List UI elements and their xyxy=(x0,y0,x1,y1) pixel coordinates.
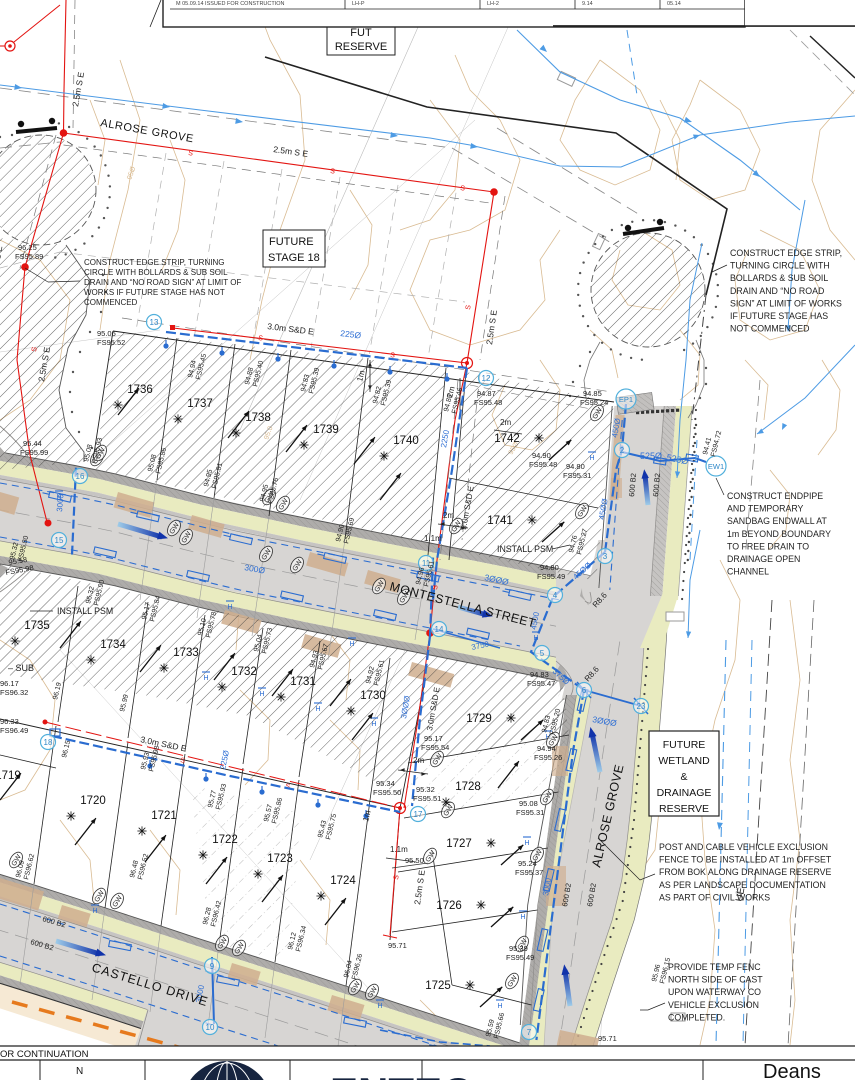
svg-text:FS95.49: FS95.49 xyxy=(537,572,565,581)
svg-text:POST AND CABLE VEHICLE EXCLUSI: POST AND CABLE VEHICLE EXCLUSION xyxy=(659,842,828,852)
svg-text:94.87: 94.87 xyxy=(477,389,496,398)
svg-text:FROM BOK ALONG DRAINAGE RESERV: FROM BOK ALONG DRAINAGE RESERVE xyxy=(659,867,832,877)
svg-text:95.50: 95.50 xyxy=(405,856,424,865)
svg-text:1723: 1723 xyxy=(267,853,293,865)
svg-text:BOLLARDS & SUB SOIL: BOLLARDS & SUB SOIL xyxy=(730,273,828,283)
svg-text:NORTH SIDE OF CAST: NORTH SIDE OF CAST xyxy=(668,975,763,985)
svg-text:1738: 1738 xyxy=(245,412,271,424)
svg-text:95.39: 95.39 xyxy=(509,944,528,953)
svg-text:2m: 2m xyxy=(443,511,454,520)
svg-text:DRAINAGE OPEN: DRAINAGE OPEN xyxy=(727,554,800,564)
svg-text:1733: 1733 xyxy=(173,647,199,659)
svg-text:96.17: 96.17 xyxy=(0,679,19,688)
svg-text:94.90: 94.90 xyxy=(532,451,551,460)
svg-text:1724: 1724 xyxy=(330,875,356,887)
svg-text:INSTALL PSM: INSTALL PSM xyxy=(497,544,553,554)
svg-text:95.34: 95.34 xyxy=(376,779,395,788)
svg-text:&: & xyxy=(680,771,687,783)
svg-text:CONSTRUCT EDGE STRIP, TURNING: CONSTRUCT EDGE STRIP, TURNING xyxy=(84,258,224,267)
svg-text:1741: 1741 xyxy=(487,515,513,527)
svg-text:H: H xyxy=(534,635,539,642)
svg-text:1736: 1736 xyxy=(127,384,153,396)
svg-text:1729: 1729 xyxy=(466,713,492,725)
svg-text:LH-P: LH-P xyxy=(352,1,365,7)
svg-text:95.06: 95.06 xyxy=(97,329,116,338)
svg-text:1728: 1728 xyxy=(455,781,481,793)
svg-text:H: H xyxy=(498,1003,503,1010)
svg-text:FS95.51: FS95.51 xyxy=(413,794,441,803)
svg-text:COMPLETED.: COMPLETED. xyxy=(668,1012,725,1022)
svg-text:CHANNEL: CHANNEL xyxy=(727,567,769,577)
svg-text:H: H xyxy=(260,691,265,698)
svg-text:AND TEMPORARY: AND TEMPORARY xyxy=(727,504,804,514)
svg-text:1720: 1720 xyxy=(80,795,106,807)
svg-text:05.14: 05.14 xyxy=(667,1,681,7)
svg-text:TURNING CIRCLE WITH: TURNING CIRCLE WITH xyxy=(730,261,830,271)
svg-text:FS95.52: FS95.52 xyxy=(97,338,125,347)
svg-text:FENCE TO BE INSTALLED AT 1m OF: FENCE TO BE INSTALLED AT 1m OFFSET xyxy=(659,855,832,865)
svg-text:DRAINAGE: DRAINAGE xyxy=(657,787,712,799)
svg-text:LH-2: LH-2 xyxy=(487,1,499,7)
svg-text:H: H xyxy=(372,721,377,728)
svg-text:AS PART OF CIVIL WORKS: AS PART OF CIVIL WORKS xyxy=(659,892,770,902)
svg-text:OR CONTINUATION: OR CONTINUATION xyxy=(0,1049,89,1060)
svg-text:3: 3 xyxy=(603,552,608,561)
svg-text:94.80: 94.80 xyxy=(566,462,585,471)
svg-text:UPON WATERWAY CO: UPON WATERWAY CO xyxy=(668,987,761,997)
svg-text:H: H xyxy=(525,840,530,847)
svg-text:FS95.54: FS95.54 xyxy=(421,743,449,752)
svg-text:FUTURE: FUTURE xyxy=(269,236,314,248)
svg-text:WORKS IF FUTURE STAGE HAS NOT: WORKS IF FUTURE STAGE HAS NOT xyxy=(84,288,225,297)
svg-text:1.1m: 1.1m xyxy=(390,845,408,854)
svg-text:12: 12 xyxy=(482,374,491,383)
svg-text:95.71: 95.71 xyxy=(598,1034,617,1043)
svg-text:9.14: 9.14 xyxy=(582,1,593,7)
svg-text:95.17: 95.17 xyxy=(424,734,443,743)
svg-text:5: 5 xyxy=(540,649,545,658)
svg-text:FUTURE: FUTURE xyxy=(663,739,706,751)
svg-text:Deans: Deans xyxy=(763,1061,821,1080)
svg-text:3000: 3000 xyxy=(55,493,66,512)
svg-text:6: 6 xyxy=(582,686,587,695)
svg-text:1732: 1732 xyxy=(231,666,257,678)
svg-text:ENTEC: ENTEC xyxy=(330,1069,472,1080)
svg-text:18: 18 xyxy=(44,738,53,747)
svg-text:23: 23 xyxy=(637,702,646,711)
svg-text:1721: 1721 xyxy=(151,810,177,822)
svg-text:CONSTRUCT EDGE STRIP,: CONSTRUCT EDGE STRIP, xyxy=(730,248,842,258)
svg-text:10: 10 xyxy=(206,1023,215,1032)
svg-text:H: H xyxy=(590,455,595,462)
svg-text:VEHICLE EXCLUSION: VEHICLE EXCLUSION xyxy=(668,1000,759,1010)
svg-text:4: 4 xyxy=(553,591,558,600)
svg-text:1731: 1731 xyxy=(290,676,316,688)
svg-text:1725: 1725 xyxy=(425,980,451,992)
svg-text:FS95.31: FS95.31 xyxy=(516,808,544,817)
svg-text:H: H xyxy=(204,675,209,682)
svg-text:1734: 1734 xyxy=(100,639,126,651)
svg-text:WETLAND: WETLAND xyxy=(658,755,710,767)
svg-text:FS95.99: FS95.99 xyxy=(20,448,48,457)
svg-text:SANDBAG ENDWALL AT: SANDBAG ENDWALL AT xyxy=(727,516,828,526)
svg-text:95.71: 95.71 xyxy=(388,941,407,950)
svg-text:CONSTRUCT ENDPIPE: CONSTRUCT ENDPIPE xyxy=(727,491,823,501)
svg-text:FS96.32: FS96.32 xyxy=(0,688,28,697)
svg-text:2m: 2m xyxy=(413,756,424,765)
svg-text:TO FREE DRAIN TO: TO FREE DRAIN TO xyxy=(727,541,809,551)
svg-text:95.32: 95.32 xyxy=(416,785,435,794)
svg-text:EW1: EW1 xyxy=(708,462,724,471)
svg-text:DRAIN AND “NO ROAD SIGN” AT LI: DRAIN AND “NO ROAD SIGN” AT LIMIT OF xyxy=(84,278,241,287)
svg-text:96.33: 96.33 xyxy=(0,717,19,726)
svg-text:STAGE 18: STAGE 18 xyxy=(268,252,320,264)
svg-text:2m: 2m xyxy=(500,418,511,427)
svg-text:FUT: FUT xyxy=(350,27,372,39)
svg-text:FS95.48: FS95.48 xyxy=(474,398,502,407)
svg-text:1726: 1726 xyxy=(436,900,462,912)
svg-text:17: 17 xyxy=(414,810,423,819)
svg-text:1739: 1739 xyxy=(313,424,339,436)
svg-text:FS95.50: FS95.50 xyxy=(373,788,401,797)
svg-text:16: 16 xyxy=(76,472,85,481)
svg-text:FS96.49: FS96.49 xyxy=(0,726,28,735)
svg-text:PROVIDE TEMP FENC: PROVIDE TEMP FENC xyxy=(668,962,761,972)
svg-text:1742: 1742 xyxy=(494,433,520,445)
svg-text:14: 14 xyxy=(435,625,444,634)
svg-text:1722: 1722 xyxy=(212,834,238,846)
svg-text:15: 15 xyxy=(55,536,64,545)
svg-text:FS95.31: FS95.31 xyxy=(563,471,591,480)
svg-text:95.08: 95.08 xyxy=(519,799,538,808)
svg-text:95.44: 95.44 xyxy=(23,439,42,448)
svg-text:1727: 1727 xyxy=(446,838,472,850)
svg-text:H: H xyxy=(93,908,98,915)
svg-text:IF FUTURE STAGE HAS: IF FUTURE STAGE HAS xyxy=(730,311,828,321)
svg-text:RESERVE: RESERVE xyxy=(659,803,709,815)
svg-text:1m BEYOND BOUNDARY: 1m BEYOND BOUNDARY xyxy=(727,529,831,539)
svg-text:M 05.09.14 ISSUED FOR CONSTRU: M 05.09.14 ISSUED FOR CONSTRUCTION xyxy=(176,1,285,7)
svg-text:94.80: 94.80 xyxy=(540,563,559,572)
svg-text:95.24: 95.24 xyxy=(518,859,537,868)
svg-text:FS95.26: FS95.26 xyxy=(534,753,562,762)
svg-text:DRAIN AND “NO ROAD: DRAIN AND “NO ROAD xyxy=(730,286,824,296)
svg-text:SIGN” AT LIMIT OF WORKS: SIGN” AT LIMIT OF WORKS xyxy=(730,298,842,308)
svg-text:525Ø: 525Ø xyxy=(640,451,662,461)
svg-text:96.25: 96.25 xyxy=(18,243,37,252)
svg-text:9: 9 xyxy=(210,962,215,971)
svg-text:H: H xyxy=(521,914,526,921)
svg-text:FS95.37: FS95.37 xyxy=(515,868,543,877)
svg-text:FS95.47: FS95.47 xyxy=(527,679,555,688)
svg-text:H: H xyxy=(228,604,233,611)
svg-text:FS95.48: FS95.48 xyxy=(529,460,557,469)
svg-text:COMMENCED: COMMENCED xyxy=(84,298,138,307)
svg-text:7: 7 xyxy=(527,1028,532,1037)
svg-text:H: H xyxy=(378,1003,383,1010)
svg-text:N: N xyxy=(76,1066,83,1077)
svg-text:CIRCLE WITH BOLLARDS & SUB SOI: CIRCLE WITH BOLLARDS & SUB SOIL xyxy=(84,268,228,277)
svg-text:13: 13 xyxy=(150,318,159,327)
svg-text:1740: 1740 xyxy=(393,435,419,447)
svg-text:H: H xyxy=(350,641,355,648)
svg-text:FS95.49: FS95.49 xyxy=(506,953,534,962)
svg-text:1730: 1730 xyxy=(360,690,386,702)
svg-text:1735: 1735 xyxy=(24,620,50,632)
svg-text:RESERVE: RESERVE xyxy=(335,41,387,53)
svg-text:2: 2 xyxy=(620,446,625,455)
svg-text:FS95.89: FS95.89 xyxy=(15,252,43,261)
svg-text:1.1m: 1.1m xyxy=(424,534,442,543)
svg-text:94.94: 94.94 xyxy=(537,744,556,753)
svg-text:NOT COMMENCED: NOT COMMENCED xyxy=(730,324,810,334)
svg-text:94.85: 94.85 xyxy=(583,389,602,398)
svg-text:INSTALL PSM: INSTALL PSM xyxy=(57,606,113,616)
svg-text:– SUB: – SUB xyxy=(8,663,34,673)
svg-text:FS95.24: FS95.24 xyxy=(580,398,608,407)
svg-text:94.83: 94.83 xyxy=(530,670,549,679)
svg-text:1737: 1737 xyxy=(187,398,213,410)
svg-text:H: H xyxy=(316,706,321,713)
svg-text:EP1: EP1 xyxy=(619,395,633,404)
